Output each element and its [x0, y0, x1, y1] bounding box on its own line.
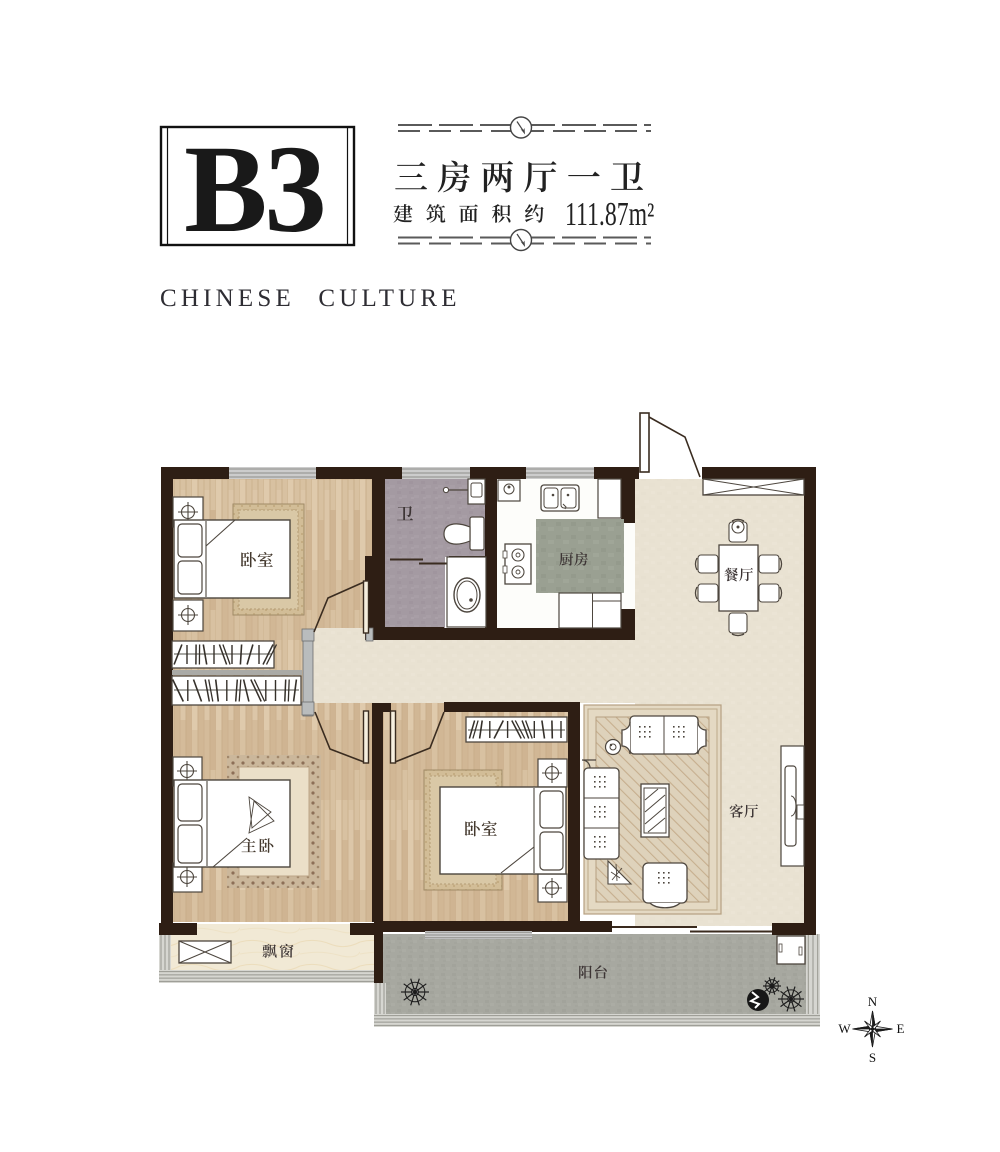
- svg-text:B3: B3: [184, 121, 324, 259]
- svg-text:CHINESE CULTURE: CHINESE CULTURE: [160, 285, 461, 312]
- svg-text:W: W: [838, 1021, 851, 1036]
- svg-text:E: E: [897, 1021, 905, 1036]
- svg-text:N: N: [868, 994, 878, 1009]
- svg-text:S: S: [869, 1050, 876, 1065]
- svg-text:111.87m²: 111.87m²: [565, 196, 654, 233]
